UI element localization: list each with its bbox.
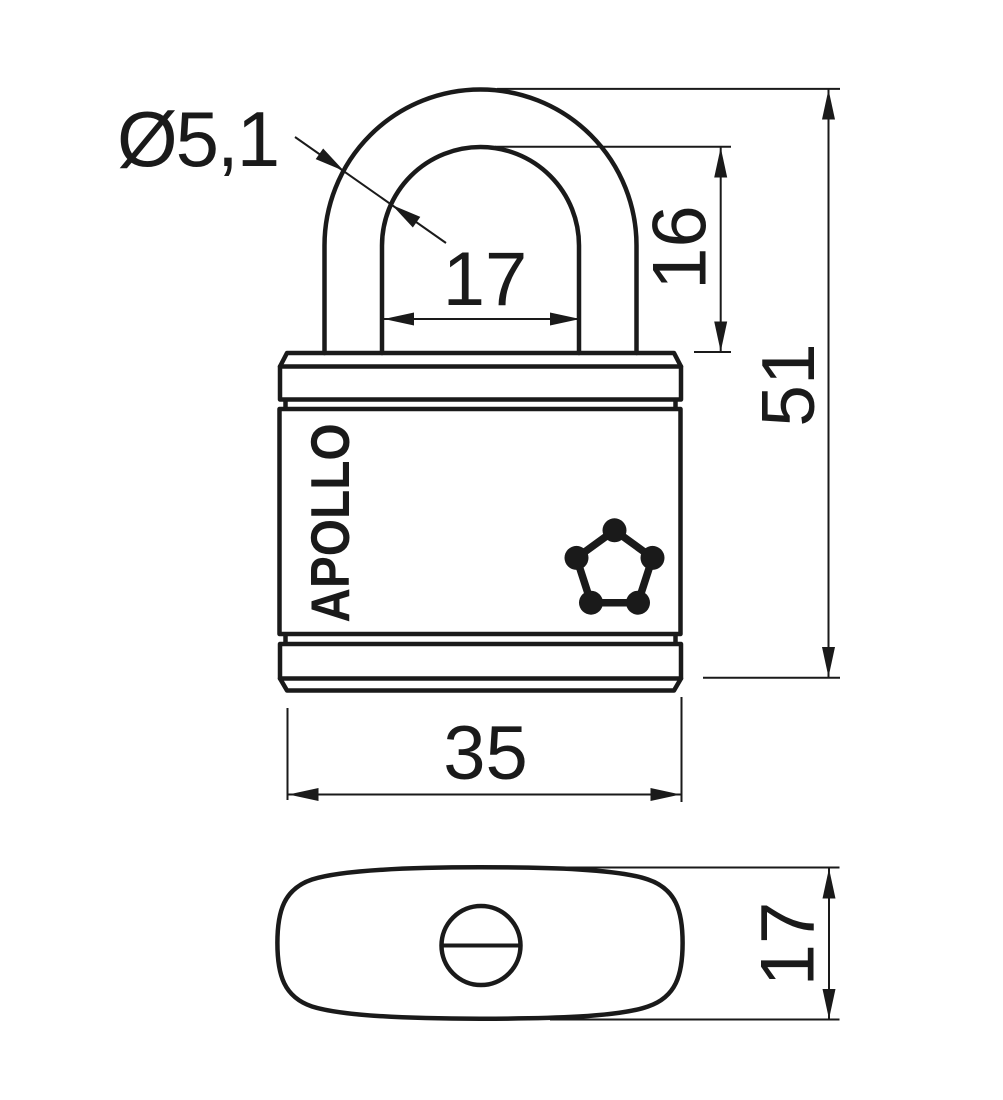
svg-text:Ø5,1: Ø5,1 — [117, 95, 278, 183]
svg-text:51: 51 — [746, 343, 830, 426]
svg-text:APOLLO: APOLLO — [299, 423, 361, 622]
svg-text:16: 16 — [638, 205, 723, 290]
svg-text:17: 17 — [443, 237, 528, 322]
svg-text:35: 35 — [443, 711, 528, 796]
svg-text:17: 17 — [746, 902, 831, 987]
